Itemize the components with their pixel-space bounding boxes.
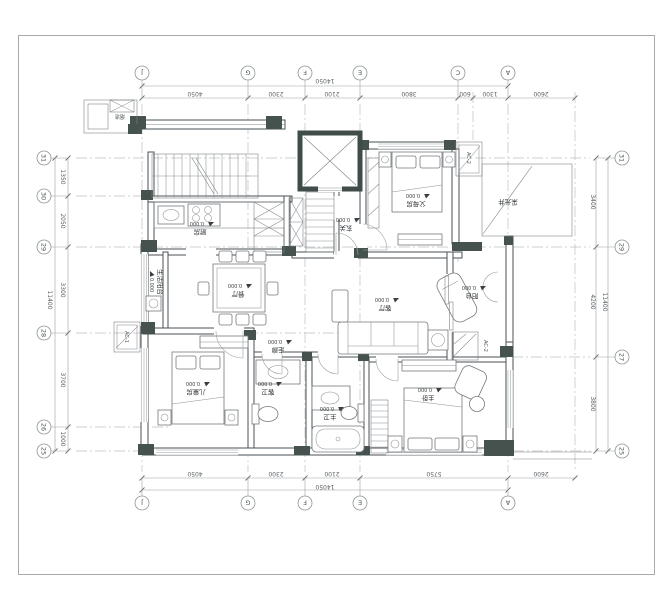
room-label-living-room: 客厅 0.000	[375, 296, 399, 313]
room-label-master-bath: 主卫 0.000	[320, 405, 344, 422]
kitchen-cabinets	[254, 198, 303, 252]
children-desk	[200, 336, 248, 348]
guest-bath-toilet	[252, 404, 278, 424]
room-name: 阳台	[466, 292, 479, 301]
dim-label: 2600	[533, 470, 548, 477]
living-side-table	[428, 330, 448, 350]
entry-stairs	[306, 192, 334, 252]
room-label-kitchen: 厨房 0.000	[190, 220, 214, 237]
room-label-guest-bath: 客卫 0.000	[258, 380, 282, 397]
room-name: 父母房	[406, 200, 426, 209]
grid-bubble-label: 31	[618, 154, 626, 162]
grid-bubble-label: 28	[40, 329, 48, 337]
dimension-right: 3400 4200 3800 11400	[589, 156, 611, 454]
room-elevation: 0.000	[375, 296, 389, 302]
ac-label: AC-1	[123, 331, 129, 343]
room-name: 玄关	[339, 224, 353, 233]
dim-label: 600	[459, 90, 471, 97]
dim-label: 3800	[589, 396, 596, 411]
master-dresser	[402, 360, 456, 371]
room-name: 客厅	[378, 304, 392, 313]
living-cabinet	[332, 290, 348, 322]
round-table	[470, 397, 485, 412]
dim-label: 2100	[324, 90, 339, 97]
light-well	[482, 164, 572, 236]
grid-bubbles-bottom: J G F E A	[135, 478, 515, 510]
grid-bubble-label: F	[303, 69, 307, 77]
parents-wardrobe	[368, 158, 379, 228]
room-label-service-balcony: 生活阳台 0.000	[148, 269, 165, 295]
grid-bubble-label: F	[303, 499, 307, 507]
grid-bubble-label: G	[245, 499, 250, 507]
room-elevation: 0.000	[462, 284, 476, 290]
dim-label: 3800	[401, 90, 416, 97]
grid-bubble-label: 29	[618, 243, 626, 251]
dim-label: 14050	[315, 77, 334, 84]
dimension-bottom: 4050 2300 2100 5750 2600 14050	[140, 470, 578, 493]
kitchen-sink	[158, 206, 184, 224]
dim-label: 2300	[268, 90, 283, 97]
ac-unit-1: AC-1	[114, 322, 140, 352]
floor-plan-drawing: 14050 4050 2300 2100 3800 600 1300 2600 …	[0, 0, 670, 600]
grid-bubble-label: 27	[618, 353, 626, 361]
room-elevation: 0.000	[406, 192, 420, 198]
room-elevation: 0.000	[228, 282, 242, 288]
grid-bubble-label: J	[141, 69, 144, 77]
room-name: 主卫	[323, 413, 337, 422]
bathtub	[312, 426, 364, 452]
dim-label: 4050	[187, 470, 202, 477]
room-name: 主卧	[421, 394, 435, 403]
dim-label: 14050	[315, 483, 334, 490]
room-label-light-well: 采光井	[498, 198, 518, 207]
grid-bubble-label: E	[358, 69, 362, 77]
room-elevation: 0.000	[190, 220, 204, 226]
grid-bubble-label: A	[505, 69, 510, 77]
room-elevation: 0.000	[148, 278, 154, 292]
room-name: 儿童房	[186, 388, 206, 397]
dim-label: 2050	[59, 213, 66, 228]
dim-label: 2300	[268, 470, 283, 477]
grid-bubble-label: 31	[40, 154, 48, 162]
shelf-strip	[371, 400, 388, 453]
elevator	[300, 133, 360, 192]
main-stairs	[152, 154, 258, 198]
grid-bubble-label: C	[455, 69, 460, 77]
dim-label: 2600	[533, 90, 548, 97]
dim-label: 11400	[601, 292, 608, 311]
ac-unit-2-right: AC-2	[452, 332, 488, 360]
room-name: 走廊	[271, 346, 285, 355]
parents-dresser	[398, 234, 442, 245]
grid-bubble-label: A	[505, 499, 510, 507]
flue-label: 烟道	[115, 113, 125, 120]
children-bed	[172, 352, 224, 424]
dim-label: 1000	[59, 431, 66, 446]
grid-bubble-label: J	[141, 499, 144, 507]
grid-bubble-label: 25	[40, 447, 48, 455]
room-elevation: 0.000	[320, 405, 334, 411]
dimension-top: 14050 4050 2300 2100 3800 600 1300 2600	[140, 77, 578, 101]
grid-bubble-label: 29	[40, 243, 48, 251]
dim-label: 3400	[589, 194, 596, 209]
balcony-door-arc	[483, 272, 498, 302]
room-name: 厨房	[194, 228, 207, 237]
room-name: 采光井	[498, 198, 518, 207]
ac-label: AC-2	[465, 152, 471, 164]
room-elevation: 0.000	[418, 386, 432, 392]
living-sofa	[338, 322, 428, 354]
room-name: 客卫	[261, 388, 275, 397]
drawing-sheet: 14050 4050 2300 2100 3800 600 1300 2600 …	[0, 0, 670, 600]
room-elevation: 0.000	[186, 380, 200, 386]
dim-label: 4200	[589, 294, 596, 309]
grid-bubbles-right: 31 29 27 25	[596, 151, 629, 458]
ac-label: AC-2	[482, 340, 488, 352]
dim-label: 4050	[187, 90, 202, 97]
dim-label: 2100	[324, 470, 339, 477]
room-label-children-room: 儿童房 0.000	[186, 380, 210, 397]
dim-label: 3700	[59, 372, 66, 387]
room-label-parents-room: 父母房 0.000	[406, 192, 430, 209]
grid-bubble-label: 30	[40, 192, 48, 200]
grid-bubble-label: G	[245, 69, 250, 77]
dim-label: 1300	[482, 90, 497, 97]
grid-bubble-label: 25	[618, 447, 626, 455]
dim-label: 11400	[46, 290, 53, 309]
ac-unit-2-top: AC-2	[456, 142, 482, 176]
room-name: 餐厅	[231, 290, 245, 299]
kitchen-counter	[154, 202, 284, 228]
room-elevation: 0.000	[258, 380, 272, 386]
room-elevation: 0.000	[268, 338, 282, 344]
dim-label: 5750	[426, 470, 441, 477]
room-elevation: 0.000	[336, 216, 350, 222]
dim-label: 1350	[59, 169, 66, 184]
washing-machine	[146, 296, 161, 311]
grid-bubble-label: 26	[40, 423, 48, 431]
room-name: 生活阳台	[156, 269, 165, 295]
dim-label: 3300	[59, 282, 66, 297]
grid-bubble-label: E	[358, 499, 362, 507]
